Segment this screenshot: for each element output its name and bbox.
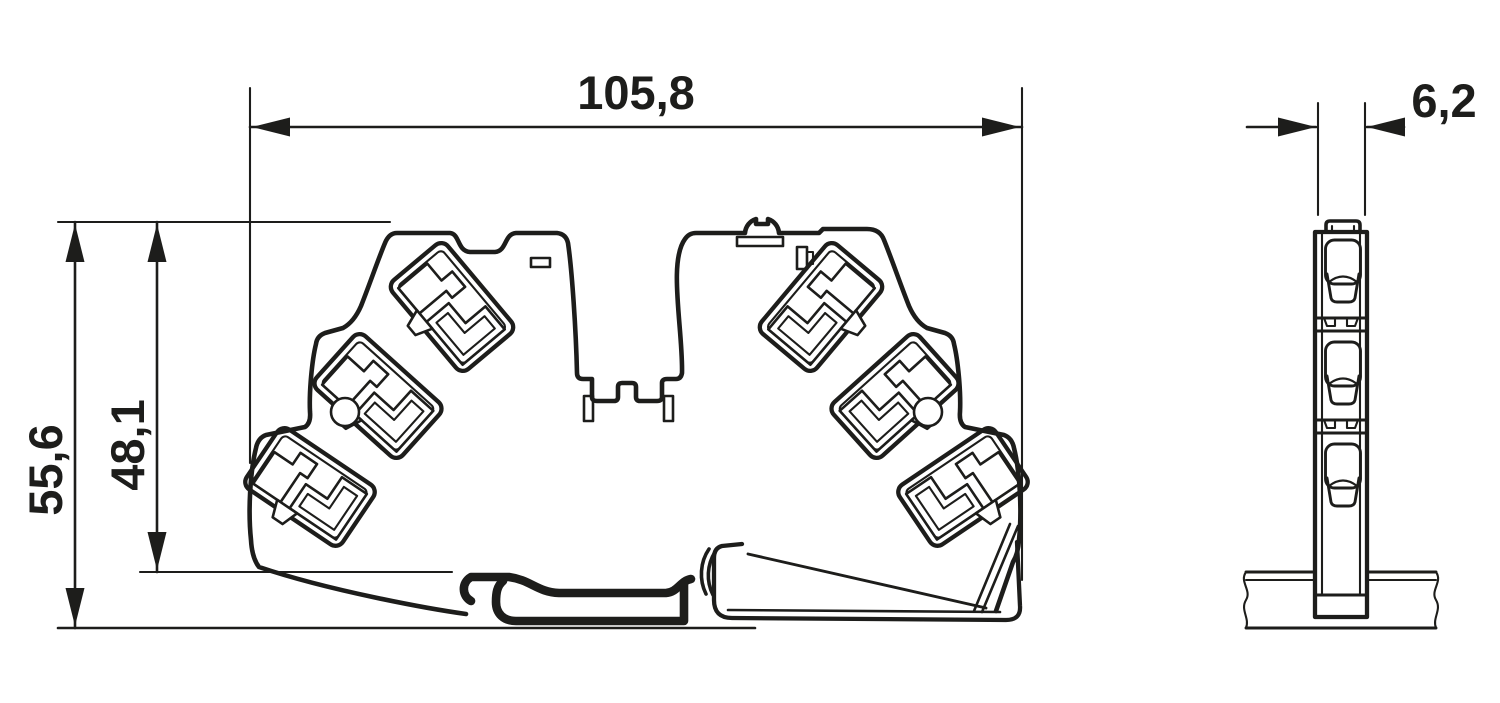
mounting-foot (701, 524, 1020, 620)
arrowhead-bottom (66, 588, 85, 626)
foot-inner-line (728, 610, 1000, 612)
rail-profile-bottom (496, 581, 684, 621)
arrowhead-top (66, 224, 85, 262)
arrowhead-top (148, 224, 167, 262)
clamp-right-middle (828, 330, 969, 469)
extension-lines (1318, 103, 1365, 215)
dimension-side-width-label: 6,2 (1411, 74, 1476, 127)
clamp-right-top (756, 239, 893, 381)
arrowhead-left (1278, 118, 1316, 137)
side-body (1315, 221, 1367, 617)
clamp-boss-left (331, 398, 359, 426)
front-view: 105,8 55,6 48,1 (19, 66, 1037, 628)
clamp-left-top (379, 239, 516, 381)
arrowhead-right (1367, 118, 1405, 137)
side-view: 6,2 (1244, 74, 1477, 628)
dimension-front-width-label: 105,8 (577, 66, 695, 119)
dimension-side-width: 6,2 (1247, 74, 1477, 215)
side-module-3 (1326, 444, 1361, 506)
technical-drawing-page: 105,8 55,6 48,1 (0, 0, 1500, 703)
dimension-front-height-outer: 55,6 (19, 222, 390, 628)
arrowhead-right (982, 118, 1020, 137)
test-tab (797, 247, 807, 269)
side-module-1 (1326, 240, 1361, 302)
marking-slot-right (737, 237, 783, 246)
arrowhead-bottom (148, 532, 167, 570)
din-rail-side (1244, 572, 1438, 628)
dimension-front-height-outer-label: 55,6 (19, 424, 72, 515)
marking-slot-left (531, 258, 550, 267)
side-module-2 (1326, 342, 1361, 404)
dimension-front-height-inner-label: 48,1 (101, 399, 154, 490)
clamp-left-middle (304, 330, 445, 469)
terminal-block-dimension-drawing: 105,8 55,6 48,1 (0, 0, 1500, 703)
funnel-slot-right (664, 396, 673, 421)
foot-top-diagonal (748, 554, 986, 608)
clamp-boss-right (914, 398, 942, 426)
arrowhead-left (252, 118, 290, 137)
